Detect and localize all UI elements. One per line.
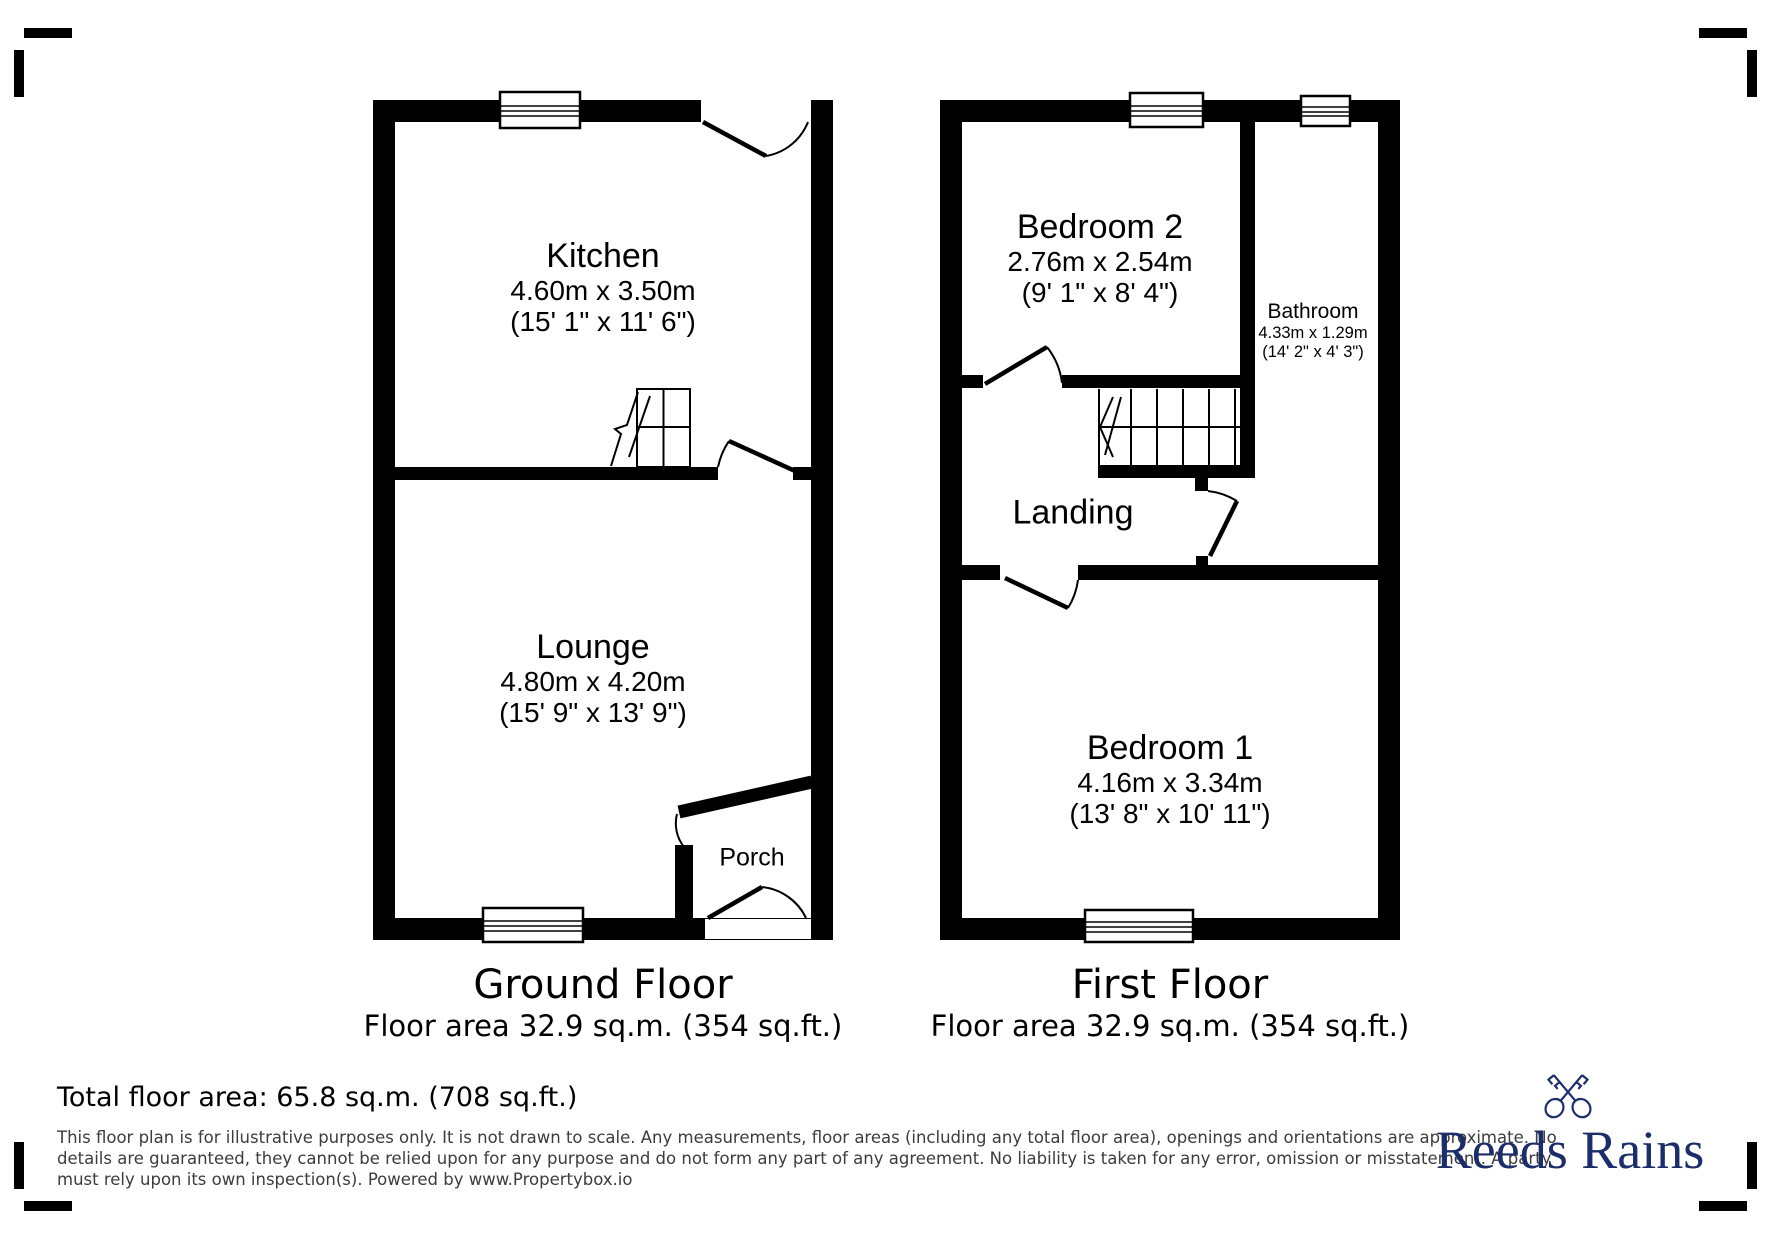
ground-floor-openings — [701, 99, 811, 939]
floorplan-graphics — [0, 0, 1771, 1239]
disclaimer-line-3: must rely upon its own inspection(s). Po… — [57, 1169, 1557, 1190]
ground-floor-stairs — [611, 389, 690, 467]
bedroom2-door — [985, 347, 1062, 384]
bedroom2-window — [1130, 93, 1203, 127]
room-metric-bedroom2: 2.76m x 2.54m — [1007, 246, 1192, 277]
room-metric-bedroom1: 4.16m x 3.34m — [1069, 767, 1270, 798]
bathroom-label: Bathroom 4.33m x 1.29m (14' 2" x 4' 3") — [1258, 300, 1367, 362]
corner-mark-bottom-right — [1699, 1201, 1747, 1211]
lounge-label: Lounge 4.80m x 4.20m (15' 9" x 13' 9") — [499, 629, 687, 728]
room-imperial-lounge: (15' 9" x 13' 9") — [499, 697, 687, 728]
room-metric-bathroom: 4.33m x 1.29m — [1258, 324, 1367, 343]
room-metric-kitchen: 4.60m x 3.50m — [510, 275, 696, 306]
first-floor-area: Floor area 32.9 sq.m. (354 sq.ft.) — [931, 1009, 1410, 1043]
room-imperial-kitchen: (15' 1" x 11' 6") — [510, 306, 696, 337]
bedroom1-label: Bedroom 1 4.16m x 3.34m (13' 8" x 10' 11… — [1069, 730, 1270, 829]
room-name-lounge: Lounge — [499, 629, 687, 666]
disclaimer-text: This floor plan is for illustrative purp… — [57, 1127, 1557, 1190]
landing-label: Landing — [1012, 494, 1133, 533]
disclaimer-line-1: This floor plan is for illustrative purp… — [57, 1127, 1557, 1148]
kitchen-label: Kitchen 4.60m x 3.50m (15' 1" x 11' 6") — [510, 238, 696, 337]
front-door — [708, 887, 806, 918]
first-floor-stairs — [1099, 389, 1240, 465]
room-name-bedroom1: Bedroom 1 — [1069, 730, 1270, 767]
kitchen-back-door — [703, 122, 808, 156]
room-imperial-bathroom: (14' 2" x 4' 3") — [1258, 343, 1367, 362]
bedroom2-label: Bedroom 2 2.76m x 2.54m (9' 1" x 8' 4") — [1007, 209, 1192, 308]
ground-floor-walls — [373, 100, 833, 940]
bedroom1-window — [1085, 910, 1193, 942]
corner-marks — [14, 28, 1757, 1211]
disclaimer-line-2: details are guaranteed, they cannot be r… — [57, 1148, 1557, 1169]
corner-mark-top-left — [24, 28, 72, 38]
ground-floor-windows — [483, 92, 583, 942]
lounge-window — [483, 908, 583, 942]
room-name-bathroom: Bathroom — [1258, 300, 1367, 324]
porch-label: Porch — [719, 844, 784, 873]
bathroom-door — [1208, 491, 1237, 556]
crossed-keys-icon — [1542, 1070, 1594, 1121]
ground-floor-title: Ground Floor — [473, 962, 732, 1008]
kitchen-lounge-door — [718, 441, 795, 471]
bedroom1-door — [1005, 578, 1078, 608]
brand-wordmark: Reeds Rains — [1436, 1119, 1704, 1181]
room-name-kitchen: Kitchen — [510, 238, 696, 275]
first-floor-title: First Floor — [1072, 962, 1268, 1008]
room-name-bedroom2: Bedroom 2 — [1007, 209, 1192, 246]
kitchen-window — [500, 92, 580, 128]
room-imperial-bedroom1: (13' 8" x 10' 11") — [1069, 798, 1270, 829]
bathroom-window — [1301, 96, 1350, 126]
room-imperial-bedroom2: (9' 1" x 8' 4") — [1007, 277, 1192, 308]
total-floor-area: Total floor area: 65.8 sq.m. (708 sq.ft.… — [57, 1082, 577, 1113]
ground-floor-area: Floor area 32.9 sq.m. (354 sq.ft.) — [364, 1009, 843, 1043]
room-metric-lounge: 4.80m x 4.20m — [499, 666, 687, 697]
corner-mark-top-right — [1699, 28, 1747, 38]
floorplan-page: Kitchen 4.60m x 3.50m (15' 1" x 11' 6") … — [0, 0, 1771, 1239]
corner-mark-bottom-left — [24, 1201, 72, 1211]
lounge-porch-door — [676, 814, 684, 847]
